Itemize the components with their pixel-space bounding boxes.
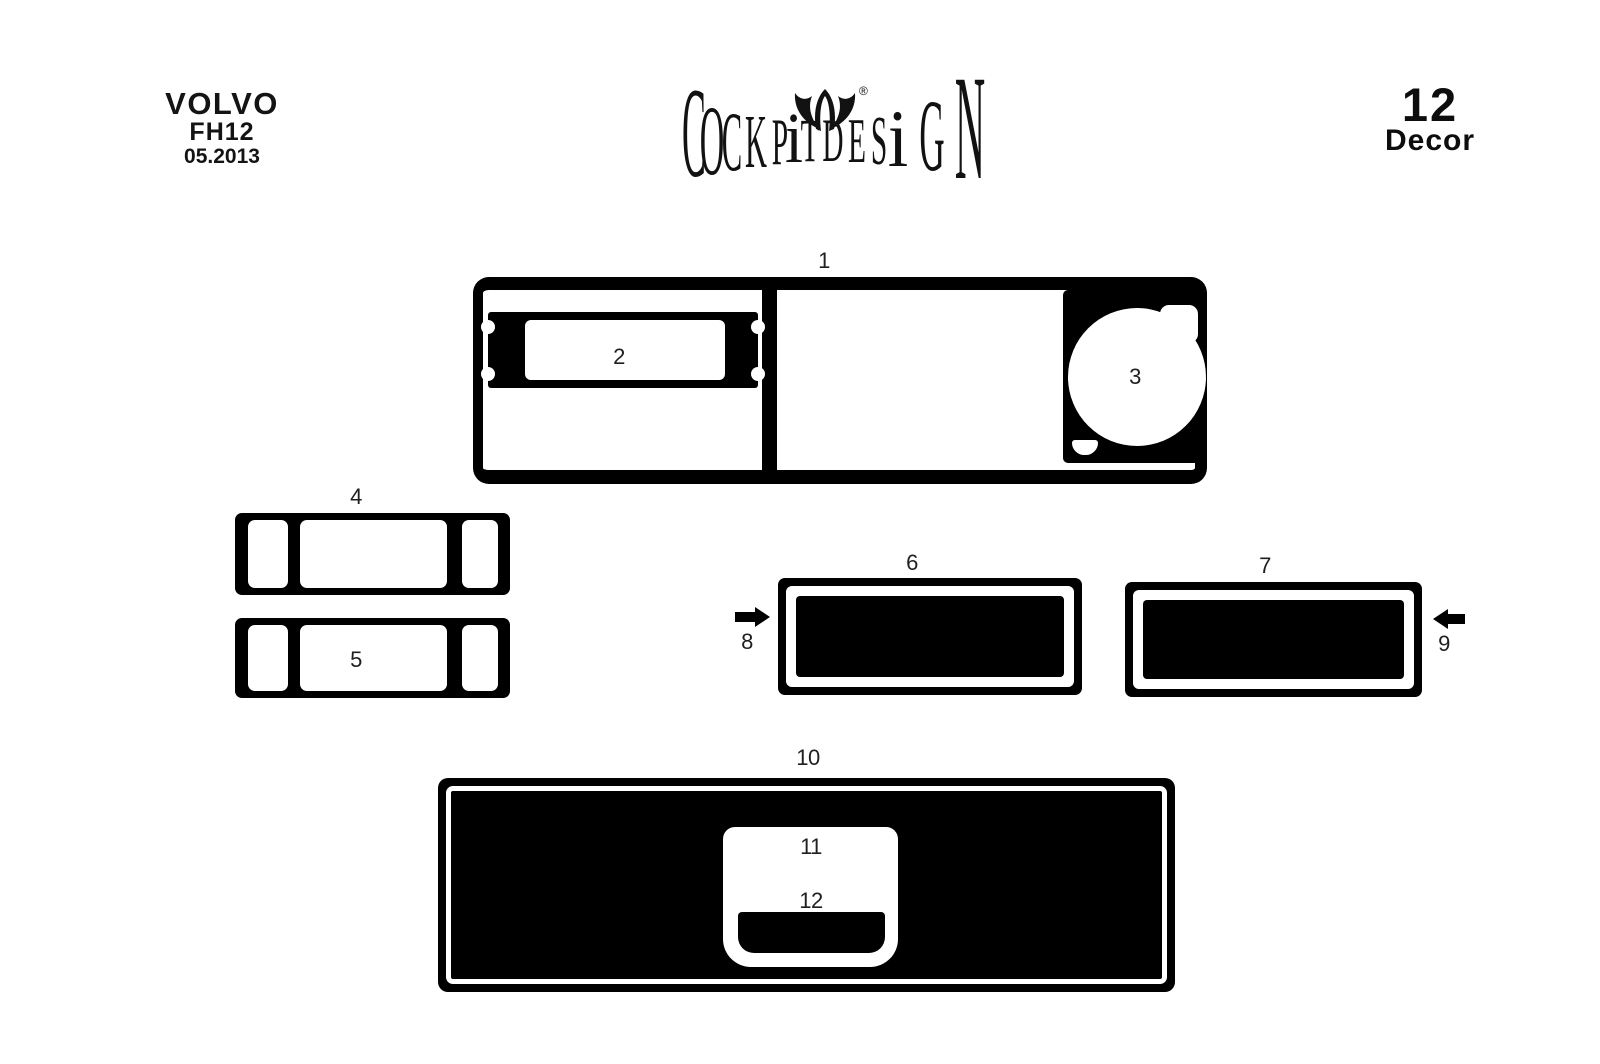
logo-letter: D xyxy=(822,107,843,175)
part-label-10: 10 xyxy=(796,745,819,771)
logo-letter: C xyxy=(722,94,742,188)
decor-count: 12 Decor xyxy=(1332,84,1528,156)
gauge-small-cutout xyxy=(1072,440,1098,455)
switch-window xyxy=(462,520,498,588)
logo-letter: K xyxy=(745,99,767,184)
screw-notch xyxy=(751,320,765,334)
vehicle-make: VOLVO xyxy=(122,88,322,119)
part-label-5: 5 xyxy=(350,647,362,673)
dash-trim-schematic: VOLVO FH12 05.2013 ® C O C K P i T D E S… xyxy=(0,0,1600,1064)
switch-window xyxy=(300,520,447,588)
piece-6-trim-plate xyxy=(778,578,1082,695)
trim-core xyxy=(796,596,1064,677)
logo-letter: G xyxy=(919,78,944,193)
part-label-9: 9 xyxy=(1438,631,1450,657)
registered-mark: ® xyxy=(859,84,868,98)
part-label-8: 8 xyxy=(741,629,753,655)
logo-letter: N xyxy=(955,68,985,203)
part-label-7: 7 xyxy=(1259,553,1271,579)
piece-7-trim-plate xyxy=(1125,582,1422,697)
cockpitdesign-logo: ® C O C K P i T D E S i G N xyxy=(640,68,1020,203)
logo-letter: S xyxy=(871,101,887,179)
piece-12-pocket xyxy=(738,912,885,953)
decor-count-value: 12 xyxy=(1332,84,1528,126)
switch-window xyxy=(248,625,288,691)
logo-letter: i xyxy=(888,92,909,183)
part-label-4: 4 xyxy=(350,484,362,510)
decor-count-label: Decor xyxy=(1332,126,1528,156)
piece-4-switch-strip xyxy=(235,513,510,595)
screw-notch xyxy=(481,367,495,381)
arrow-8-right-icon xyxy=(735,612,755,622)
piece-1-divider xyxy=(762,277,777,484)
switch-window xyxy=(248,520,288,588)
switch-window xyxy=(300,625,447,691)
logo-letter: E xyxy=(848,105,866,176)
vehicle-model: FH12 xyxy=(122,119,322,145)
switch-window xyxy=(462,625,498,691)
arrow-9-left-icon xyxy=(1448,614,1465,624)
screw-notch xyxy=(751,367,765,381)
logo-letter: O xyxy=(700,86,725,197)
part-label-1: 1 xyxy=(818,248,830,274)
part-label-2: 2 xyxy=(613,344,625,370)
vehicle-info: VOLVO FH12 05.2013 xyxy=(122,88,322,168)
piece-5-switch-strip xyxy=(235,618,510,698)
gauge-key-notch xyxy=(1160,305,1198,343)
part-label-12: 12 xyxy=(799,888,822,914)
part-label-3: 3 xyxy=(1129,364,1141,390)
part-label-6: 6 xyxy=(906,550,918,576)
part-label-11: 11 xyxy=(800,834,822,860)
arrow-9-head-icon xyxy=(1433,609,1448,629)
arrow-8-head-icon xyxy=(755,607,770,627)
trim-core xyxy=(1143,600,1404,679)
screw-notch xyxy=(481,320,495,334)
vehicle-date: 05.2013 xyxy=(122,145,322,168)
logo-letter: T xyxy=(801,108,820,175)
